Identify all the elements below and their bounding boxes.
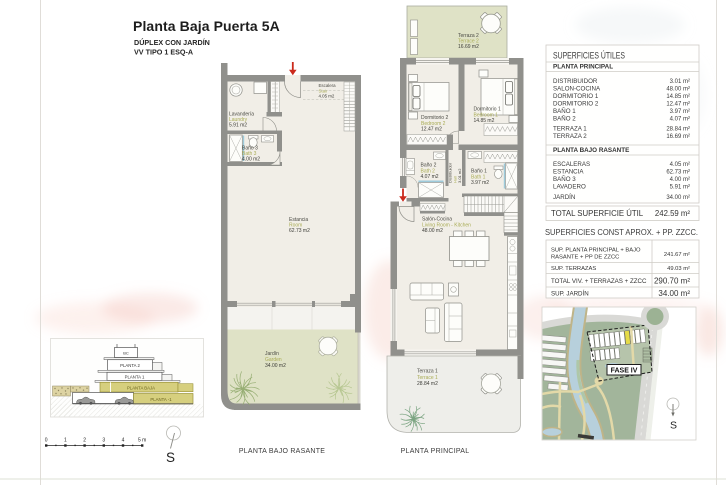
svg-text:4.05 m2: 4.05 m2 [319, 94, 335, 99]
svg-text:62.73 m²: 62.73 m² [666, 170, 690, 176]
svg-text:SUP. PLANTA PRINCIPAL + BAJO: SUP. PLANTA PRINCIPAL + BAJO [551, 248, 641, 254]
svg-text:1: 1 [64, 438, 67, 444]
svg-text:RASANTE + PP DE ZZCC: RASANTE + PP DE ZZCC [551, 255, 619, 261]
svg-text:DORMITORIO 1: DORMITORIO 1 [553, 93, 599, 100]
svg-text:PLANTA PRINCIPAL: PLANTA PRINCIPAL [401, 448, 470, 455]
svg-text:34.00 m2: 34.00 m2 [265, 363, 286, 369]
svg-text:3.97 m²: 3.97 m² [670, 109, 690, 115]
svg-text:242.59 m²: 242.59 m² [655, 209, 691, 218]
svg-text:16.69 m²: 16.69 m² [666, 134, 690, 140]
svg-text:Stair: Stair [319, 88, 329, 93]
svg-text:3: 3 [102, 438, 105, 444]
svg-text:290.70 m²: 290.70 m² [654, 277, 690, 286]
svg-text:0: 0 [45, 438, 48, 444]
svg-text:TOTAL SUPERFICIE ÚTIL: TOTAL SUPERFICIE ÚTIL [551, 209, 644, 218]
svg-text:Escalera: Escalera [319, 83, 337, 88]
svg-text:3.01 m²: 3.01 m² [670, 79, 690, 85]
svg-text:34.00 m²: 34.00 m² [658, 289, 690, 298]
svg-text:48.00 m²: 48.00 m² [666, 87, 690, 93]
svg-text:4.00 m²: 4.00 m² [670, 177, 690, 183]
svg-text:SUPERFICIES CONST APROX. + PP.: SUPERFICIES CONST APROX. + PP. ZZCC. [545, 228, 698, 237]
svg-text:48.00 m2: 48.00 m2 [422, 228, 443, 234]
svg-text:PLANTA -1: PLANTA -1 [150, 397, 172, 402]
svg-text:Terraza 1: Terraza 1 [417, 369, 438, 375]
svg-text:BAÑO 2: BAÑO 2 [553, 116, 576, 123]
svg-text:DISTRIBUIDOR: DISTRIBUIDOR [553, 78, 598, 85]
svg-text:ESTANCIA: ESTANCIA [553, 169, 584, 176]
svg-text:5.91 m2: 5.91 m2 [229, 123, 247, 129]
svg-text:16.69 m2: 16.69 m2 [458, 44, 479, 50]
svg-text:TERRAZA 2: TERRAZA 2 [553, 133, 587, 140]
svg-text:BAÑO 1: BAÑO 1 [553, 108, 576, 115]
svg-text:12.47 m2: 12.47 m2 [421, 127, 442, 133]
svg-text:4: 4 [122, 438, 125, 444]
svg-text:SUP. JARDÍN: SUP. JARDÍN [551, 291, 589, 298]
svg-text:TOTAL VIV. + TERRAZAS + ZZCC: TOTAL VIV. + TERRAZAS + ZZCC [551, 278, 647, 285]
svg-text:34.00 m²: 34.00 m² [666, 195, 690, 201]
svg-text:SUP. TERRAZAS: SUP. TERRAZAS [551, 266, 596, 272]
svg-text:ESCALERAS: ESCALERAS [553, 161, 590, 168]
svg-text:DÚPLEX CON JARDÍN: DÚPLEX CON JARDÍN [134, 38, 210, 47]
svg-text:2: 2 [83, 438, 86, 444]
svg-text:49.03 m²: 49.03 m² [667, 266, 690, 272]
svg-text:14.85 m²: 14.85 m² [666, 94, 690, 100]
svg-text:28.84 m²: 28.84 m² [666, 127, 690, 133]
svg-text:SALON-COCINA: SALON-COCINA [553, 86, 601, 93]
svg-text:BC: BC [123, 351, 129, 356]
svg-text:4.00 m2: 4.00 m2 [242, 157, 260, 163]
svg-text:PLANTA BAJA: PLANTA BAJA [127, 385, 155, 390]
svg-text:3.01 m2: 3.01 m2 [457, 168, 462, 183]
svg-text:Planta Baja Puerta 5A: Planta Baja Puerta 5A [133, 18, 280, 34]
svg-text:14.85 m2: 14.85 m2 [474, 118, 495, 124]
svg-text:5.91 m²: 5.91 m² [670, 185, 690, 191]
svg-text:PLANTA 2: PLANTA 2 [120, 363, 140, 368]
svg-text:JARDÍN: JARDÍN [553, 194, 575, 201]
svg-text:12.47 m²: 12.47 m² [666, 102, 690, 108]
svg-text:FASE IV: FASE IV [611, 368, 638, 375]
svg-text:S: S [670, 420, 677, 432]
svg-text:TERRAZA 1: TERRAZA 1 [553, 126, 587, 133]
svg-text:28.84 m2: 28.84 m2 [417, 381, 438, 387]
svg-text:62.73 m2: 62.73 m2 [289, 228, 310, 234]
svg-text:4.07 m²: 4.07 m² [670, 117, 690, 123]
svg-text:BAÑO 3: BAÑO 3 [553, 176, 576, 183]
svg-text:241.67 m²: 241.67 m² [664, 252, 690, 258]
svg-text:LAVADERO: LAVADERO [553, 184, 586, 191]
svg-text:PLANTA BAJO RASANTE: PLANTA BAJO RASANTE [239, 448, 325, 455]
svg-text:VV TIPO 1 ESQ-A: VV TIPO 1 ESQ-A [134, 48, 193, 57]
svg-text:3.97 m2: 3.97 m2 [471, 180, 489, 186]
svg-text:PLANTA 1: PLANTA 1 [125, 375, 145, 380]
svg-text:DORMITORIO 2: DORMITORIO 2 [553, 101, 599, 108]
svg-text:Terrace 1: Terrace 1 [417, 375, 438, 381]
svg-text:4.05 m²: 4.05 m² [670, 162, 690, 168]
svg-text:S: S [166, 450, 175, 465]
svg-text:PLANTA BAJO RASANTE: PLANTA BAJO RASANTE [553, 147, 629, 154]
svg-text:PLANTA PRINCIPAL: PLANTA PRINCIPAL [553, 64, 613, 71]
svg-text:5 m: 5 m [138, 438, 146, 444]
svg-text:4.07 m2: 4.07 m2 [421, 174, 439, 180]
svg-text:SUPERFICIES ÚTILES: SUPERFICIES ÚTILES [553, 51, 625, 61]
